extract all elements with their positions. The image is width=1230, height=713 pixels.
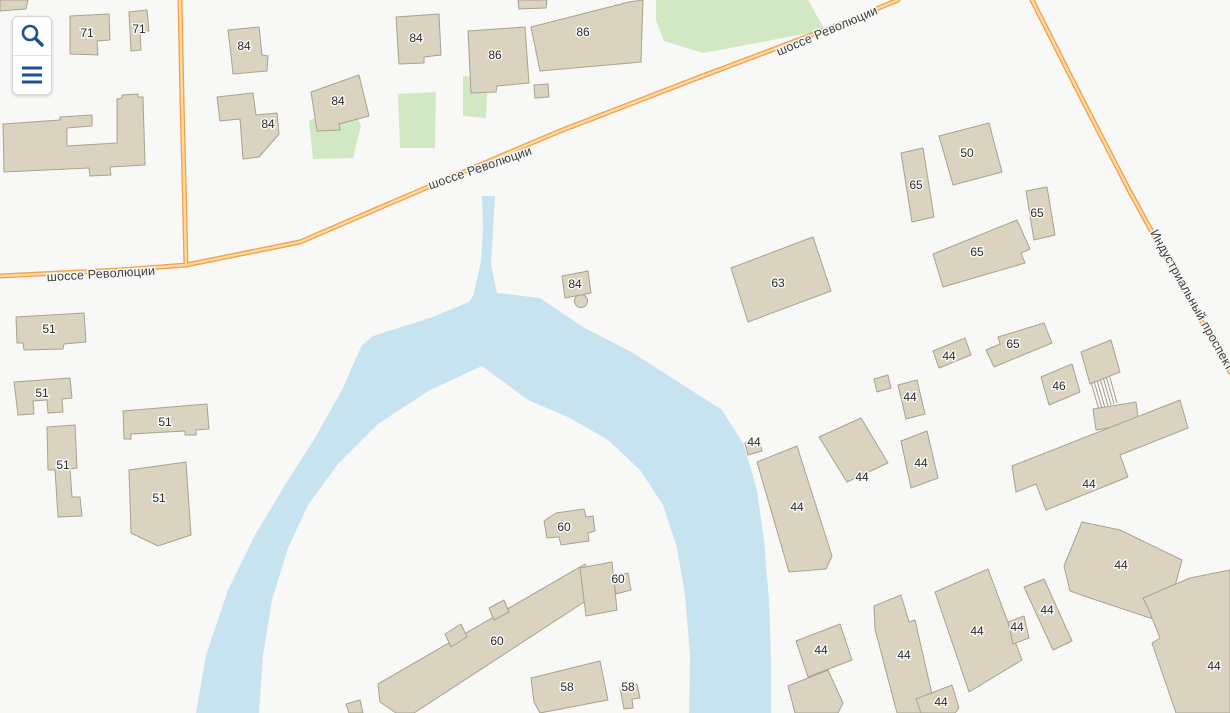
building[interactable]: [346, 700, 363, 713]
building[interactable]: [70, 14, 110, 55]
building[interactable]: [468, 27, 529, 93]
building[interactable]: [396, 14, 441, 64]
footbridge-line: [1109, 374, 1117, 403]
building[interactable]: [562, 271, 591, 298]
menu-button[interactable]: [13, 56, 51, 94]
map-controls: [12, 16, 52, 95]
building[interactable]: [123, 404, 209, 439]
street-name-label: Индустриальный проспект: [1147, 227, 1230, 373]
map-canvas[interactable]: 7171848486868484506565656365444644444444…: [0, 0, 1230, 713]
building[interactable]: [534, 84, 549, 98]
tower-circle: [575, 295, 588, 308]
building[interactable]: [3, 94, 145, 176]
building[interactable]: [580, 562, 617, 616]
green-area: [398, 92, 436, 148]
building[interactable]: [901, 148, 934, 222]
building[interactable]: [613, 573, 631, 594]
building[interactable]: [228, 27, 268, 74]
search-button[interactable]: [13, 17, 51, 55]
building[interactable]: [0, 0, 28, 11]
street-name-label: шоссе Революции: [426, 144, 533, 193]
building[interactable]: [1041, 364, 1080, 405]
menu-icon: [13, 56, 51, 94]
map-svg[interactable]: 7171848486868484506565656365444644444444…: [0, 0, 1230, 713]
building[interactable]: [1024, 579, 1072, 650]
building[interactable]: [796, 624, 852, 677]
building[interactable]: [819, 418, 888, 482]
building[interactable]: [939, 123, 1002, 185]
building[interactable]: [1026, 187, 1055, 240]
building[interactable]: [518, 0, 547, 9]
building[interactable]: [311, 75, 369, 131]
building[interactable]: [935, 569, 1022, 692]
building[interactable]: [933, 338, 971, 368]
building[interactable]: [757, 446, 832, 572]
building[interactable]: [1081, 340, 1120, 384]
building[interactable]: [731, 237, 831, 322]
building[interactable]: [544, 509, 595, 545]
building[interactable]: [217, 93, 279, 159]
building[interactable]: [788, 670, 843, 713]
building[interactable]: [745, 439, 762, 455]
building[interactable]: [986, 323, 1052, 367]
building[interactable]: [14, 378, 72, 415]
building[interactable]: [933, 220, 1030, 287]
building[interactable]: [898, 380, 925, 419]
building[interactable]: [901, 431, 938, 488]
search-icon: [13, 17, 51, 55]
building[interactable]: [47, 425, 82, 517]
building[interactable]: [129, 462, 191, 546]
building[interactable]: [531, 661, 608, 713]
building[interactable]: [874, 375, 891, 392]
building[interactable]: [620, 684, 640, 709]
building[interactable]: [129, 10, 149, 51]
street-name-label: шоссе Революции: [46, 264, 155, 285]
building[interactable]: [16, 313, 86, 350]
building[interactable]: [531, 0, 643, 71]
